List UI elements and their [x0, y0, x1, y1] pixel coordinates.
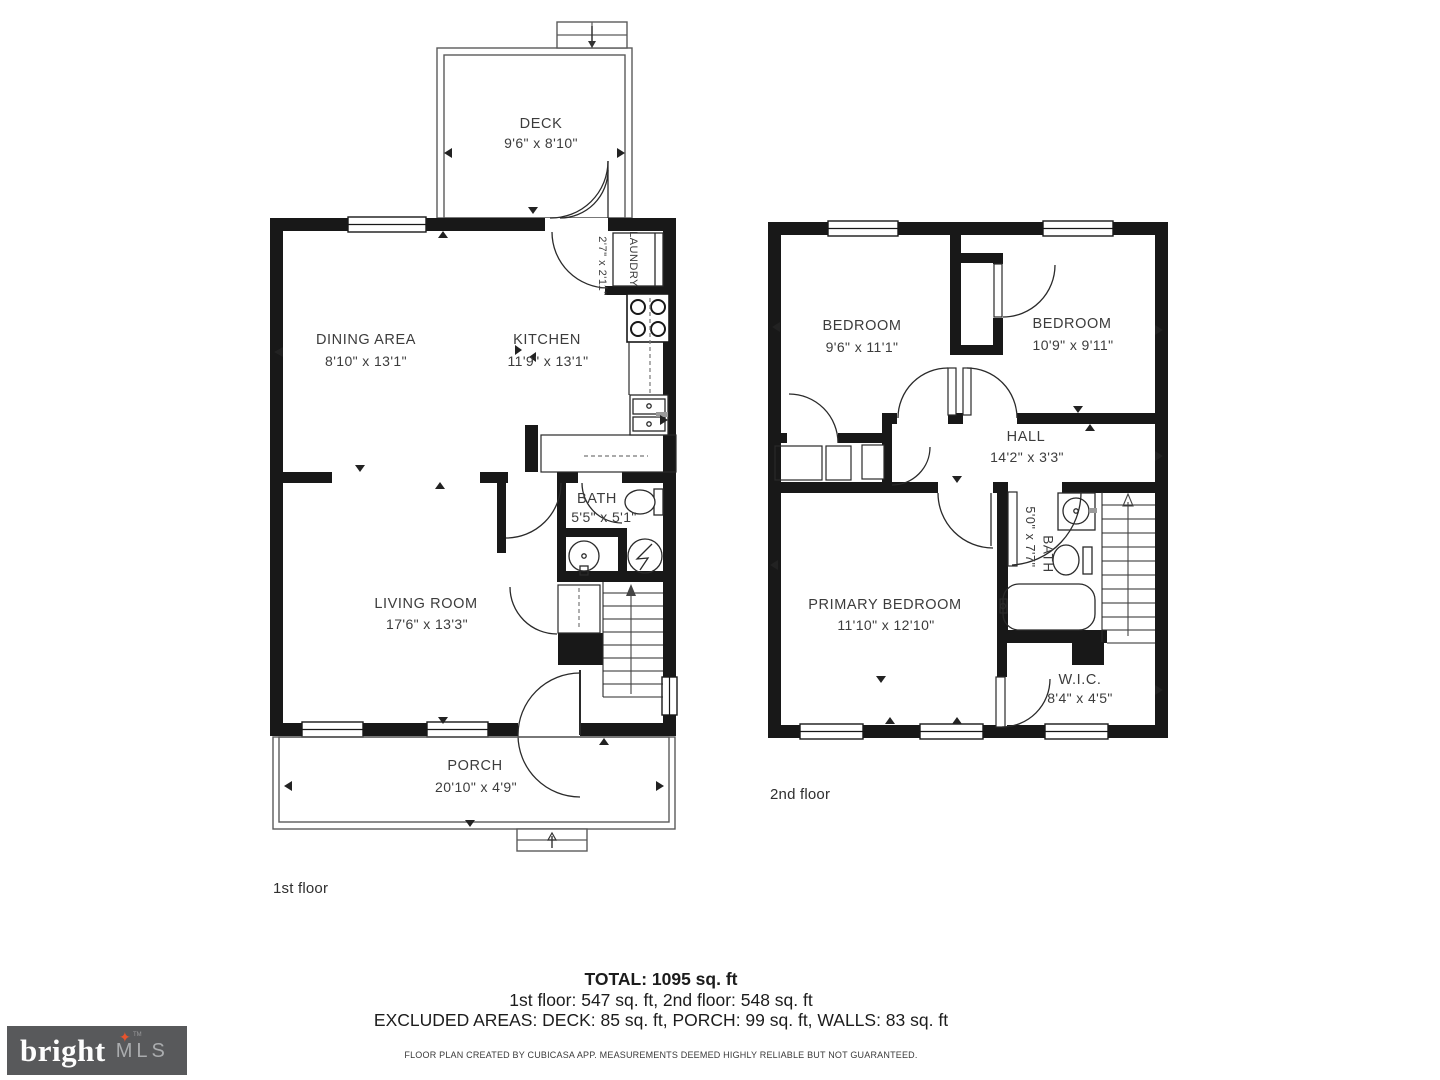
- stairwell-opening: [775, 446, 851, 480]
- bath-sink-icon: [569, 541, 599, 575]
- floor-areas-line: 1st floor: 547 sq. ft, 2nd floor: 548 sq…: [161, 990, 1161, 1011]
- room-dims-bedroom-1: 9'6" x 11'1": [826, 339, 899, 355]
- closet-icon: [558, 585, 600, 633]
- deck-stairs-icon: [557, 22, 627, 48]
- room-label-living-room: LIVING ROOM: [374, 596, 477, 612]
- room-label-primary-bedroom: PRIMARY BEDROOM: [808, 597, 962, 613]
- second-floor-caption: 2nd floor: [770, 786, 830, 803]
- room-dims-primary-bedroom: 11'10" x 12'10": [837, 617, 934, 633]
- room-dims-deck: 9'6" x 8'10": [504, 135, 578, 151]
- bath2-sink-icon: [1058, 493, 1097, 530]
- room-label-hall: HALL: [1007, 429, 1046, 445]
- room-label-kitchen: KITCHEN: [513, 332, 581, 348]
- second-floor-plan: [768, 221, 1168, 739]
- kitchen-sink-icon: [630, 395, 668, 435]
- staircase-second-icon: [1102, 492, 1155, 643]
- trademark-symbol: TM: [133, 1032, 142, 1038]
- room-dims-dining-area: 8'10" x 13'1": [325, 353, 407, 369]
- room-dims-bath-first: 5'5" x 5'1": [571, 509, 637, 525]
- staircase-first-icon: [603, 582, 663, 697]
- star-icon: ✦: [119, 1030, 131, 1044]
- room-dims-bedroom-2: 10'9" x 9'11": [1033, 337, 1114, 353]
- first-floor-plan: [270, 22, 677, 851]
- door-arcs-second: [789, 265, 1081, 727]
- room-label-dining-area: DINING AREA: [316, 332, 416, 348]
- room-label-bath-first: BATH: [577, 491, 617, 507]
- room-dims-porch: 20'10" x 4'9": [435, 779, 517, 795]
- room-dims-wic: 8'4" x 4'5": [1047, 690, 1113, 706]
- room-label-wic: W.I.C.: [1058, 672, 1101, 688]
- bathtub-icon: [1000, 584, 1095, 630]
- stove-icon: [627, 294, 669, 342]
- room-dims-living-room: 17'6" x 13'3": [386, 616, 468, 632]
- shower-icon: [628, 539, 662, 573]
- room-dims-kitchen: 11'9" x 13'1": [508, 353, 589, 369]
- toilet2-icon: [1053, 545, 1092, 575]
- disclaimer-line: FLOOR PLAN CREATED BY CUBICASA APP. MEAS…: [161, 1050, 1161, 1061]
- room-label-laundry: LAUNDRY: [627, 231, 639, 287]
- total-area-line: TOTAL: 1095 sq. ft: [161, 969, 1161, 990]
- first-floor-caption: 1st floor: [273, 880, 328, 897]
- excluded-areas-line: EXCLUDED AREAS: DECK: 85 sq. ft, PORCH: …: [161, 1010, 1161, 1031]
- room-label-bedroom-2: BEDROOM: [1032, 316, 1111, 332]
- room-label-bath-second: BATH: [1041, 535, 1056, 572]
- room-label-bedroom-1: BEDROOM: [822, 318, 901, 334]
- logo-brand-text: bright: [20, 1035, 106, 1066]
- porch-steps-icon: [517, 829, 587, 851]
- room-dims-laundry: 2'7" x 2'11": [596, 236, 608, 295]
- floorplan-canvas: DECK 9'6" x 8'10" DINING AREA 8'10" x 13…: [0, 0, 1440, 1080]
- room-label-porch: PORCH: [447, 758, 502, 774]
- area-summary: TOTAL: 1095 sq. ft 1st floor: 547 sq. ft…: [161, 969, 1161, 1061]
- brightmls-logo: bright ✦ TM MLS: [7, 1026, 187, 1075]
- room-dims-bath-second: 5'0" x 7'7": [1023, 506, 1037, 567]
- room-dims-hall: 14'2" x 3'3": [990, 449, 1064, 465]
- floorplan-drawing: [0, 0, 1440, 1080]
- room-label-deck: DECK: [520, 116, 563, 132]
